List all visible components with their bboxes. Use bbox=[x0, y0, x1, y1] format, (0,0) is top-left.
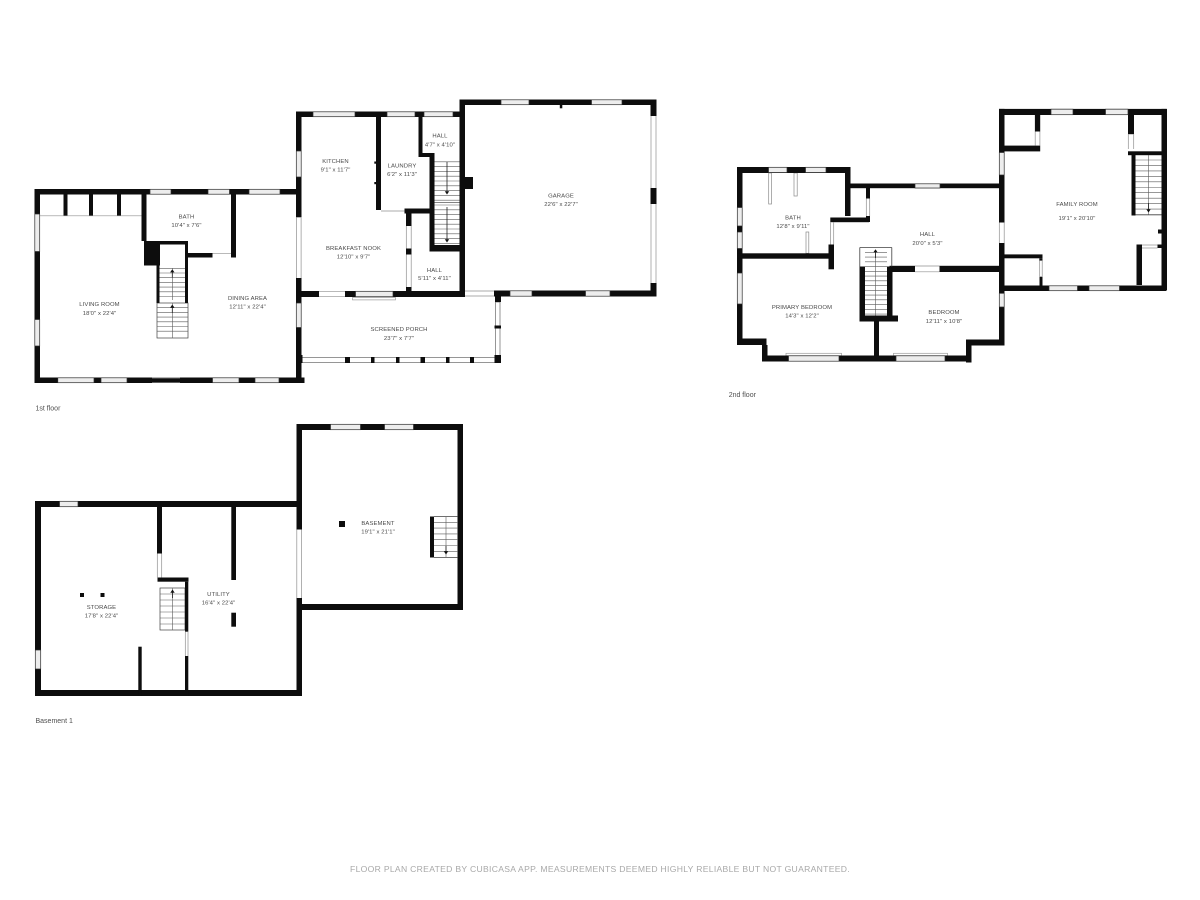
svg-text:23'7" x 7'7": 23'7" x 7'7" bbox=[384, 336, 414, 342]
svg-text:LAUNDRY: LAUNDRY bbox=[388, 164, 417, 170]
svg-text:20'0" x 5'3": 20'0" x 5'3" bbox=[912, 241, 942, 247]
svg-text:UTILITY: UTILITY bbox=[207, 592, 230, 598]
svg-text:Basement 1: Basement 1 bbox=[36, 718, 73, 725]
svg-text:HALL: HALL bbox=[920, 232, 936, 238]
svg-text:BATH: BATH bbox=[785, 216, 801, 222]
svg-text:16'4" x 22'4": 16'4" x 22'4" bbox=[202, 601, 236, 607]
svg-text:STORAGE: STORAGE bbox=[87, 605, 116, 611]
svg-text:18'0" x 22'4": 18'0" x 22'4" bbox=[83, 311, 117, 317]
svg-text:GARAGE: GARAGE bbox=[548, 194, 574, 200]
svg-text:DINING AREA: DINING AREA bbox=[228, 296, 267, 302]
svg-text:4'7" x 4'10": 4'7" x 4'10" bbox=[425, 143, 455, 149]
svg-text:BREAKFAST NOOK: BREAKFAST NOOK bbox=[326, 246, 381, 252]
svg-text:HALL: HALL bbox=[427, 268, 443, 274]
svg-text:10'4" x 7'6": 10'4" x 7'6" bbox=[171, 223, 201, 229]
svg-text:12'10" x 9'7": 12'10" x 9'7" bbox=[337, 255, 371, 261]
svg-text:14'3" x 12'2": 14'3" x 12'2" bbox=[785, 314, 819, 320]
svg-text:12'11" x 22'4": 12'11" x 22'4" bbox=[229, 305, 266, 311]
svg-text:PRIMARY BEDROOM: PRIMARY BEDROOM bbox=[772, 305, 832, 311]
svg-text:BASEMENT: BASEMENT bbox=[361, 521, 395, 527]
svg-text:FLOOR PLAN CREATED BY CUBICASA: FLOOR PLAN CREATED BY CUBICASA APP. MEAS… bbox=[350, 864, 850, 874]
svg-text:6'2" x 11'3": 6'2" x 11'3" bbox=[387, 172, 417, 178]
svg-text:2nd floor: 2nd floor bbox=[729, 392, 757, 399]
svg-text:19'1" x 20'10": 19'1" x 20'10" bbox=[1059, 216, 1096, 222]
svg-text:SCREENED PORCH: SCREENED PORCH bbox=[370, 327, 427, 333]
svg-text:5'11" x 4'11": 5'11" x 4'11" bbox=[418, 276, 451, 282]
svg-text:HALL: HALL bbox=[432, 134, 448, 140]
svg-text:9'1" x 11'7": 9'1" x 11'7" bbox=[321, 168, 351, 174]
svg-text:LIVING ROOM: LIVING ROOM bbox=[79, 302, 119, 308]
svg-text:BEDROOM: BEDROOM bbox=[928, 310, 959, 316]
svg-text:19'1" x 21'1": 19'1" x 21'1" bbox=[361, 530, 395, 536]
svg-text:22'6" x 22'7": 22'6" x 22'7" bbox=[544, 202, 578, 208]
svg-text:FAMILY ROOM: FAMILY ROOM bbox=[1056, 202, 1097, 208]
svg-text:BATH: BATH bbox=[179, 215, 195, 221]
svg-text:12'11" x 10'8": 12'11" x 10'8" bbox=[926, 319, 963, 325]
svg-text:KITCHEN: KITCHEN bbox=[322, 159, 349, 165]
svg-text:1st floor: 1st floor bbox=[36, 405, 62, 412]
svg-text:17'8" x 22'4": 17'8" x 22'4" bbox=[85, 614, 119, 620]
svg-text:12'8" x 9'11": 12'8" x 9'11" bbox=[776, 224, 809, 230]
